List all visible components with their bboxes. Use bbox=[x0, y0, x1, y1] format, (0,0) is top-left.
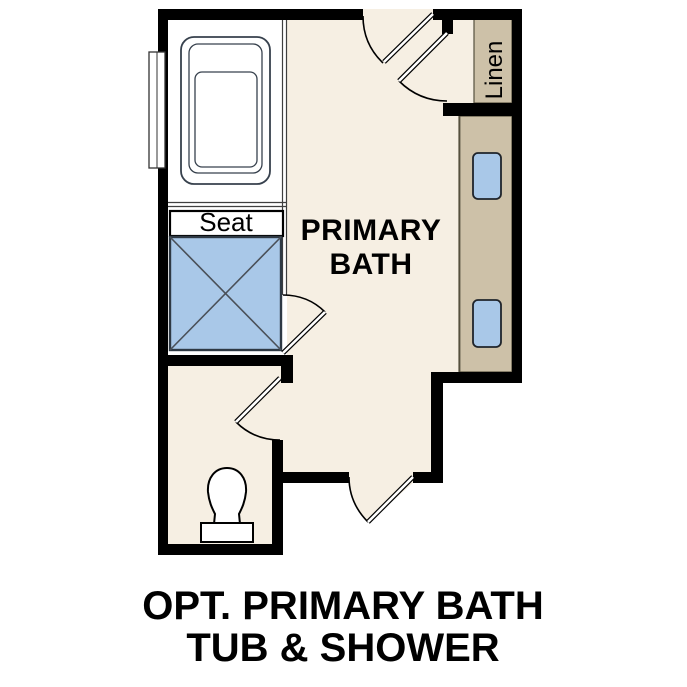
shower-pan bbox=[170, 237, 281, 350]
wall-top-left bbox=[158, 9, 363, 20]
toilet-tank bbox=[201, 523, 253, 542]
room-label-line2: BATH bbox=[329, 248, 412, 281]
wall-wc-door-post bbox=[281, 355, 293, 383]
wall-entry-step bbox=[431, 372, 443, 483]
wall-right bbox=[512, 9, 522, 383]
wall-wc-bottom bbox=[158, 544, 283, 555]
wall-entry-jamb bbox=[413, 472, 443, 483]
wall-linen-bottom bbox=[443, 103, 522, 116]
vanity-sink-2 bbox=[473, 300, 501, 347]
floor-plan-drawing: Seat Linen PRIMARY BATH OPT. PRIMARY BAT… bbox=[0, 0, 687, 687]
vanity-sink-1 bbox=[473, 153, 501, 199]
wall-shower-wc-divider bbox=[158, 355, 293, 366]
floor-plan-page: Seat Linen PRIMARY BATH OPT. PRIMARY BAT… bbox=[0, 0, 687, 687]
wall-top-right bbox=[433, 9, 522, 20]
wall-linen-door-post bbox=[442, 19, 453, 34]
caption-line1: OPT. PRIMARY BATH bbox=[142, 584, 544, 628]
linen-label: Linen bbox=[481, 41, 508, 100]
wall-wc-right bbox=[272, 440, 283, 555]
room-label-line1: PRIMARY bbox=[301, 214, 442, 247]
wall-bottom-right bbox=[431, 372, 522, 383]
seat-label: Seat bbox=[199, 207, 253, 237]
window bbox=[149, 52, 165, 168]
wall-bottom-center bbox=[283, 472, 349, 483]
caption-line2: TUB & SHOWER bbox=[186, 626, 499, 670]
